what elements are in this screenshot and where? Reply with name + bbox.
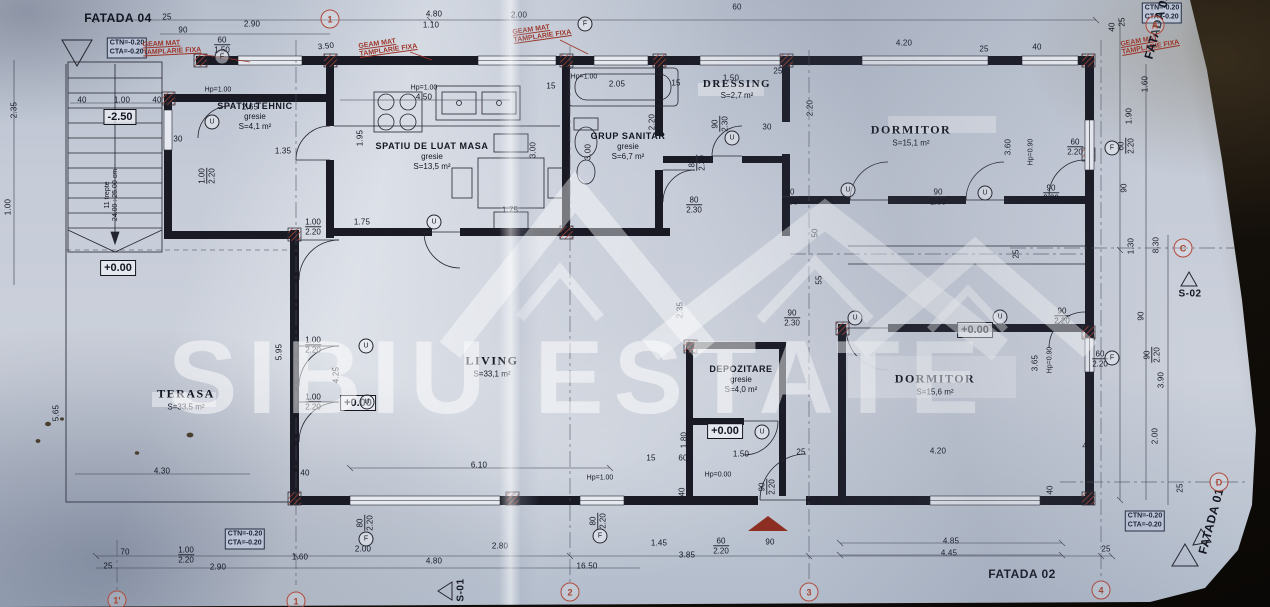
- room-label: SPATIU DE LUAT MASAgresieS=13,5 m²: [376, 141, 489, 171]
- dimension-label: 2.35: [676, 302, 685, 318]
- dimension-fraction: 602.20: [1067, 138, 1083, 156]
- ctn-line: CTN=-0.20: [110, 40, 144, 49]
- room-area: S=4,1 m²: [217, 122, 292, 131]
- room-name: DORMITOR: [895, 372, 975, 387]
- dimension-label: 2.90: [210, 563, 226, 572]
- stair-note-line1: 11 trepte: [104, 169, 112, 221]
- grid-bubble: 1': [108, 591, 127, 607]
- dimension-label: 1.35: [275, 147, 291, 156]
- dimension-fraction: 1.002.20: [305, 393, 321, 411]
- fraction-top: 90: [710, 120, 719, 129]
- fraction-bottom: 2.20: [305, 226, 321, 236]
- dimension-label: 30: [173, 135, 182, 144]
- dimension-label: 8.30: [1152, 237, 1161, 253]
- grid-bubble: D: [1210, 473, 1229, 492]
- fraction-top: 1.00: [305, 335, 321, 344]
- fraction-bottom: 2.20: [364, 515, 374, 531]
- dimension-label: Hp=1.00: [411, 85, 438, 92]
- grid-bubble: A: [1146, 16, 1165, 35]
- dimension-label: 16.50: [576, 562, 597, 571]
- dimension-label: 70: [120, 548, 129, 557]
- dimension-label: 2.90: [244, 20, 260, 29]
- room-finish: gresie: [376, 152, 489, 161]
- dimension-label: 2.00: [511, 11, 527, 20]
- dimension-label: 6.10: [471, 461, 487, 470]
- fraction-top: 60: [1096, 349, 1105, 358]
- dimension-label: 4.80: [426, 10, 442, 19]
- dimension-label: 3.90: [1157, 372, 1166, 388]
- dimension-label: 3.85: [679, 551, 695, 560]
- fraction-bottom: 2.20: [178, 554, 194, 564]
- fraction-bottom: 2.20: [206, 168, 216, 184]
- dimension-fraction: 1.002.20: [305, 218, 321, 236]
- dimension-label: 1.75: [502, 206, 518, 215]
- dimension-label: 3.65: [1031, 355, 1040, 371]
- window-note-line2: TAMPLARIE FIXA: [143, 46, 202, 57]
- annotation-layer: 25902.903.504.801.102.00604.202540401.00…: [0, 0, 1270, 607]
- window-marker: F: [593, 529, 608, 544]
- room-name: DORMITOR: [871, 123, 951, 138]
- fraction-top: 90: [786, 187, 795, 196]
- dimension-label: 40: [678, 487, 687, 496]
- dimension-fraction: 902.30: [784, 309, 800, 327]
- dimension-label: 1.45: [651, 539, 667, 548]
- dimension-label: 30: [762, 123, 771, 132]
- dimension-label: 3.60: [1004, 139, 1013, 155]
- facade-label: FATADA 01: [1195, 487, 1226, 556]
- dimension-label: 4.50: [416, 93, 432, 102]
- dimension-label: 3.00: [529, 142, 538, 158]
- dimension-label: 2.80: [492, 542, 508, 551]
- dimension-label: 25: [1012, 249, 1021, 258]
- grid-bubble: 2: [561, 583, 580, 602]
- fraction-bottom: 2.20: [1067, 146, 1083, 156]
- fraction-top: 90: [757, 483, 766, 492]
- dimension-label: 2.00: [1151, 428, 1160, 444]
- fraction-bottom: 2.30: [696, 155, 706, 171]
- fraction-top: 1.00: [305, 392, 321, 401]
- stair-note-line2: 24.00 : 25.00 cm: [112, 169, 120, 221]
- fraction-bottom: 2.20: [305, 401, 321, 411]
- dimension-label: 1.30: [1127, 238, 1136, 254]
- fraction-top: 90: [1047, 183, 1056, 192]
- fraction-bottom: 2.20: [597, 513, 607, 529]
- dimension-label: 5.65: [52, 405, 61, 421]
- door-marker: U: [755, 425, 770, 440]
- dimension-label: 15: [646, 454, 655, 463]
- fraction-top: 60: [1071, 137, 1080, 146]
- fraction-top: 90: [1142, 351, 1151, 360]
- dimension-label: 40: [1082, 442, 1091, 451]
- dimension-label: 25: [1118, 17, 1127, 26]
- fraction-bottom: 2.20: [766, 479, 776, 495]
- door-marker: U: [427, 215, 442, 230]
- dimension-label: Hp=1.00: [587, 475, 614, 482]
- fraction-top: 1.00: [197, 168, 206, 184]
- dimension-label: 4.80: [426, 557, 442, 566]
- fraction-top: 90: [788, 308, 797, 317]
- window-marker: F: [1105, 141, 1120, 156]
- fraction-bottom: 2.30: [686, 204, 702, 214]
- grid-bubble: 1: [287, 592, 306, 607]
- dimension-fraction: 602.20: [1117, 138, 1135, 154]
- dimension-label: Hp=1.00: [205, 87, 232, 94]
- fraction-bottom: 2.30: [784, 317, 800, 327]
- dimension-fraction: 1.002.20: [178, 546, 194, 564]
- dimension-label: 1.95: [356, 130, 365, 146]
- room-label: DORMITORS=15,6 m²: [895, 372, 975, 397]
- dimension-label: 1.60: [1141, 76, 1150, 92]
- dimension-label: 40: [152, 96, 161, 105]
- facade-label: FATADA 02: [988, 567, 1056, 581]
- door-marker: U: [848, 311, 863, 326]
- dimension-label: 40: [1032, 43, 1041, 52]
- room-name: SPATIU DE LUAT MASA: [376, 141, 489, 151]
- dimension-label: 90: [1137, 311, 1146, 320]
- dimension-label: 25: [773, 67, 782, 76]
- dimension-label: 4.25: [332, 367, 341, 383]
- room-label: LIVINGS=33,1 m²: [465, 354, 518, 379]
- door-marker: U: [725, 131, 740, 146]
- ctn-line: CTN=-0.20: [1128, 513, 1162, 522]
- room-label: SPATIU TEHNICgresieS=4,1 m²: [217, 101, 292, 131]
- elevation-marker: +0.00: [100, 260, 136, 276]
- window-marker: F: [359, 532, 374, 547]
- dimension-label: Hp=0.90: [1047, 347, 1054, 374]
- elevation-marker: +0.00: [707, 423, 743, 439]
- corner-level-note: CTN=-0.20CTA=-0.20: [107, 38, 147, 59]
- dimension-fraction: 902.20: [758, 479, 776, 495]
- section-marker: S-01: [456, 578, 467, 601]
- dimension-label: Hp=0.90: [1028, 139, 1035, 166]
- fraction-top: 80: [690, 195, 699, 204]
- fraction-bottom: 2.20: [1151, 347, 1161, 363]
- room-label: DORMITORS=15,1 m²: [871, 123, 951, 148]
- door-marker: U: [360, 395, 375, 410]
- dimension-label: 4.20: [930, 447, 946, 456]
- fraction-top: 80: [355, 519, 364, 528]
- fraction-top: 60: [218, 35, 227, 44]
- dimension-label: 2.35: [10, 102, 19, 118]
- dimension-fraction: 1.002.20: [198, 168, 216, 184]
- dimension-label: 2.20: [806, 100, 815, 116]
- fraction-bottom: 2.30: [782, 196, 798, 206]
- window-note: GEAM MATTAMPLARIE FIXA: [358, 35, 418, 59]
- fraction-bottom: 2.20: [1125, 138, 1135, 154]
- window-marker: F: [1105, 351, 1120, 366]
- dimension-label: 50: [811, 228, 820, 237]
- room-label: DEPOZITAREgresieS=4,0 m²: [709, 364, 772, 394]
- cta-line: CTA=-0.20: [1128, 521, 1162, 530]
- room-name: SPATIU TEHNIC: [217, 101, 292, 111]
- cta-line: CTA=-0.20: [110, 48, 144, 57]
- dimension-label: 4.30: [154, 467, 170, 476]
- fraction-top: 1.00: [178, 545, 194, 554]
- section-marker: S-02: [1178, 289, 1201, 300]
- dimension-label: Hp=1.00: [571, 74, 598, 81]
- dimension-fraction: 802.30: [686, 196, 702, 214]
- door-marker: U: [978, 186, 993, 201]
- elevation-marker: -2.50: [103, 109, 136, 125]
- room-name: DRESSING: [703, 78, 771, 90]
- corner-level-note: CTN=-0.20CTA=-0.20: [225, 529, 265, 550]
- fraction-bottom: 2.30: [719, 116, 729, 132]
- dimension-label: 60: [678, 454, 687, 463]
- room-area: S=15,6 m²: [895, 388, 975, 397]
- dimension-fraction: 802.20: [356, 515, 374, 531]
- room-finish: gresie: [709, 375, 772, 384]
- dimension-label: Hp=0.00: [705, 472, 732, 479]
- fraction-bottom: 2.20: [1054, 315, 1070, 325]
- grid-bubble: C: [1174, 239, 1193, 258]
- dimension-fraction: 902.30: [782, 188, 798, 206]
- fraction-bottom: 2.20: [305, 344, 321, 354]
- dimension-label: 1.10: [423, 21, 439, 30]
- room-area: S=15,1 m²: [871, 139, 951, 148]
- door-marker: U: [993, 310, 1008, 325]
- dimension-label: 15: [546, 82, 555, 91]
- dimension-label: 25: [1176, 483, 1185, 492]
- grid-bubble: 3: [800, 583, 819, 602]
- room-label: DRESSINGS=2,7 m²: [703, 78, 771, 100]
- room-area: S=2,7 m²: [703, 91, 771, 100]
- dimension-fraction: 902.30: [930, 188, 946, 206]
- room-area: S=33,1 m²: [465, 370, 518, 379]
- dimension-label: 25: [103, 562, 112, 571]
- dimension-label: 1.75: [354, 218, 370, 227]
- stair-note: 11 trepte24.00 : 25.00 cm: [104, 169, 120, 221]
- dimension-label: 40: [300, 469, 309, 478]
- door-marker: U: [359, 339, 374, 354]
- room-label: GRUP SANITARgresieS=6,7 m²: [591, 131, 666, 161]
- dimension-fraction: 902.20: [1143, 347, 1161, 363]
- elevation-marker: +0.00: [957, 322, 993, 338]
- fraction-bottom: 2.20: [713, 545, 729, 555]
- room-label: TERASAS=33,5 m²: [157, 387, 215, 412]
- door-marker: U: [841, 183, 856, 198]
- blueprint-photo: 25902.903.504.801.102.00604.202540401.00…: [0, 0, 1270, 607]
- dimension-label: 1.50: [733, 450, 749, 459]
- dimension-label: 1.00: [4, 199, 13, 215]
- fraction-top: 90: [1058, 306, 1067, 315]
- window-note: GEAM MATTAMPLARIE FIXA: [143, 38, 202, 57]
- dimension-label: 1.90: [1125, 108, 1134, 124]
- room-name: DEPOZITARE: [709, 364, 772, 374]
- grid-bubble: 1: [321, 10, 340, 29]
- fraction-bottom: 2.20: [1043, 192, 1059, 202]
- dimension-label: 90: [1120, 183, 1129, 192]
- fraction-top: 60: [717, 536, 726, 545]
- window-note: GEAM MATTAMPLARIE FIXA: [512, 21, 572, 45]
- dimension-label: 25: [162, 13, 171, 22]
- room-name: TERASA: [157, 387, 215, 402]
- dimension-label: 55: [815, 275, 824, 284]
- room-name: LIVING: [465, 354, 518, 369]
- room-area: S=4,0 m²: [709, 385, 772, 394]
- ctn-line: CTN=-0.20: [228, 531, 262, 540]
- dimension-label: 2.05: [609, 80, 625, 89]
- dimension-label: 40: [1108, 22, 1117, 31]
- dimension-fraction: 902.20: [1043, 184, 1059, 202]
- dimension-label: 90: [765, 538, 774, 547]
- dimension-label: 2.20: [648, 114, 657, 130]
- dimension-fraction: 902.30: [711, 116, 729, 132]
- dimension-label: 60: [732, 3, 741, 12]
- window-marker: F: [215, 50, 230, 65]
- dimension-label: 25: [979, 45, 988, 54]
- fraction-top: 90: [934, 187, 943, 196]
- dimension-label: 4.20: [896, 39, 912, 48]
- dimension-label: 90: [178, 26, 187, 35]
- corner-level-note: CTN=-0.20CTA=-0.20: [1125, 511, 1165, 532]
- dimension-label: 4.85: [943, 537, 959, 546]
- grid-bubble: 4: [1092, 581, 1111, 600]
- room-finish: gresie: [217, 112, 292, 121]
- dimension-label: 25: [796, 448, 805, 457]
- dimension-label: 1.60: [292, 553, 308, 562]
- dimension-label: 3.50: [317, 41, 334, 52]
- fraction-top: 80: [687, 159, 696, 168]
- fraction-top: 1.00: [305, 217, 321, 226]
- dimension-label: 40: [1046, 485, 1055, 494]
- fraction-top: 80: [588, 517, 597, 526]
- room-area: S=6,7 m²: [591, 152, 666, 161]
- room-area: S=33,5 m²: [157, 403, 215, 412]
- door-marker: U: [205, 115, 220, 130]
- dimension-label: 25: [1101, 545, 1110, 554]
- dimension-label: 4.45: [941, 549, 957, 558]
- dimension-fraction: 902.20: [1054, 307, 1070, 325]
- cta-line: CTA=-0.20: [228, 539, 262, 548]
- facade-label: FATADA 04: [84, 11, 152, 25]
- room-finish: gresie: [591, 142, 666, 151]
- fraction-bottom: 2.30: [930, 196, 946, 206]
- dimension-label: 40: [77, 96, 86, 105]
- room-name: GRUP SANITAR: [591, 131, 666, 141]
- dimension-fraction: 802.30: [688, 155, 706, 171]
- dimension-fraction: 1.002.20: [305, 336, 321, 354]
- window-marker: F: [578, 17, 593, 32]
- dimension-fraction: 802.20: [589, 513, 607, 529]
- dimension-fraction: 602.20: [713, 537, 729, 555]
- dimension-label: 1.80: [680, 432, 689, 448]
- dimension-label: 1.00: [114, 96, 130, 105]
- dimension-label: 15: [671, 79, 680, 88]
- room-area: S=13,5 m²: [376, 162, 489, 171]
- dimension-label: 5.95: [275, 344, 284, 360]
